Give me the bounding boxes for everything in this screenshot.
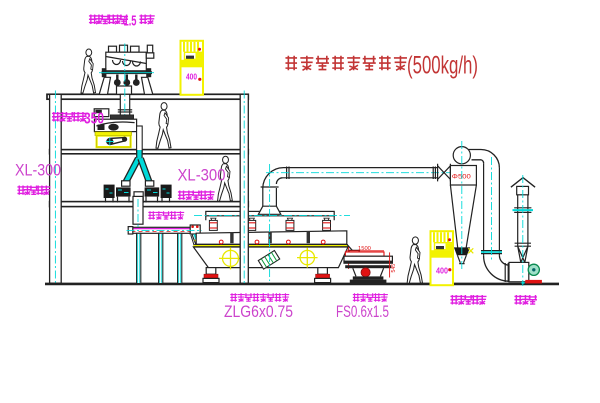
svg-text:(500kg/h): (500kg/h): [407, 52, 478, 80]
svg-text:1500: 1500: [358, 246, 371, 252]
svg-text:400: 400: [186, 72, 197, 82]
svg-text:350: 350: [84, 111, 104, 128]
svg-text:400: 400: [436, 266, 448, 276]
svg-text:545: 545: [391, 264, 397, 273]
svg-text:1.5: 1.5: [124, 13, 137, 30]
svg-text:FS0.6x1.5: FS0.6x1.5: [336, 302, 389, 321]
svg-text:XL-300: XL-300: [178, 166, 226, 185]
svg-text:ZLG6x0.75: ZLG6x0.75: [224, 302, 293, 321]
svg-text:XL-300: XL-300: [15, 161, 61, 180]
